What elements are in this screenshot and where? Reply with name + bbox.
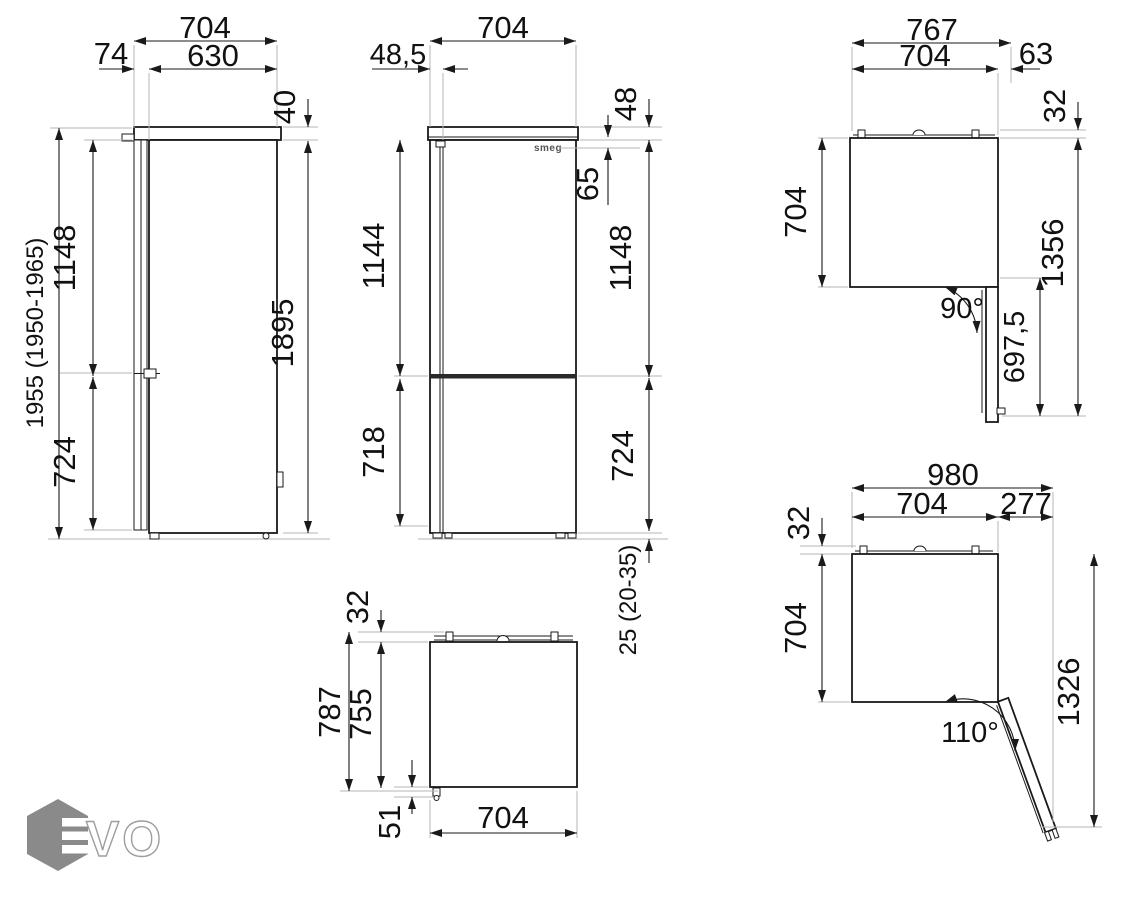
door-hinge-pin [997, 408, 1005, 414]
rear-spacer [551, 632, 558, 641]
dim-front-lower-left: 718 [356, 426, 391, 478]
drawing-svg: 704 630 74 40 1895 1955 (1950-1965) 1148… [0, 0, 1125, 900]
evo-watermark-text: VO [86, 811, 164, 867]
foot [556, 533, 565, 538]
dim-110-door-side: 277 [1000, 486, 1052, 521]
top110-drawing [852, 546, 1059, 842]
dim-side-upper-door: 1148 [47, 225, 82, 292]
cabinet-body [850, 138, 998, 287]
cabinet-body [149, 140, 277, 533]
dim-110-angle: 110° [941, 717, 999, 749]
foot [445, 533, 452, 538]
dim-front-upper-left: 1144 [356, 223, 391, 290]
rear-spacer [860, 546, 867, 554]
dim-side-depth-body: 630 [187, 38, 239, 73]
top-view-closed: 32 787 755 51 704 [312, 590, 577, 839]
top-view-door-110: 980 704 277 32 704 1326 110° [778, 457, 1102, 842]
dimension-drawing: 704 630 74 40 1895 1955 (1950-1965) 1148… [0, 0, 1125, 900]
dim-110-rear-gap: 32 [781, 506, 816, 540]
top-view-door-90: 767 704 63 32 704 697,5 1356 90° [778, 12, 1086, 422]
closed-drawing [430, 632, 577, 801]
dim-front-lower-right: 724 [605, 430, 640, 482]
dim-side-lower-door: 724 [47, 436, 82, 488]
dim-side-height-total: 1955 (1950-1965) [22, 238, 49, 429]
side-view: 704 630 74 40 1895 1955 (1950-1965) 1148… [22, 10, 330, 539]
rear-pipe [914, 546, 926, 551]
cabinet-body [430, 642, 577, 787]
dim-110-width: 704 [896, 486, 948, 521]
rear-spacer [277, 472, 283, 487]
dim-front-upper-right: 1148 [603, 225, 638, 292]
dim-90-depth: 704 [778, 186, 813, 238]
front-foot [150, 533, 159, 539]
dim-90-door-width: 697,5 [999, 311, 1031, 384]
dim-front-top-panel: 48 [608, 87, 643, 121]
dim-90-angle: 90° [940, 293, 984, 325]
top-hinge [436, 141, 445, 147]
evo-watermark: VO [27, 799, 164, 871]
dim-closed-depth: 755 [343, 688, 378, 740]
cabinet-top-panel [428, 127, 578, 140]
dim-closed-depth-total: 787 [312, 686, 347, 738]
cabinet-body [852, 554, 998, 702]
dim-closed-rear-gap: 32 [340, 590, 375, 624]
dim-front-width: 704 [477, 10, 529, 45]
dim-closed-width: 704 [477, 800, 529, 835]
front-hinge-pin [434, 796, 439, 801]
cabinet-top-panel [134, 127, 281, 140]
door-hinge-pin [1045, 831, 1052, 841]
front-view: smeg 704 48,5 48 [356, 10, 668, 655]
dim-110-reach: 1326 [1051, 658, 1086, 727]
dim-90-reach: 1356 [1035, 219, 1070, 288]
rear-spacer [972, 546, 979, 554]
dim-90-rear-gap: 32 [1037, 89, 1072, 123]
top90-drawing [850, 130, 1005, 422]
dim-front-feet: 25 (20-35) [615, 545, 642, 656]
dim-closed-front-gap: 51 [372, 805, 407, 839]
foot [433, 533, 442, 538]
dim-110-depth: 704 [778, 602, 813, 654]
rear-spacer [858, 130, 865, 138]
smeg-door-logo: smeg [534, 143, 562, 154]
rear-spacer [972, 130, 979, 138]
front-hinge-foot [433, 788, 440, 796]
dim-front-hinge-offset: 48,5 [370, 39, 426, 71]
rear-spacer [446, 632, 453, 641]
foot [568, 533, 576, 538]
dim-side-top-panel: 40 [267, 90, 302, 124]
middle-hinge [144, 369, 156, 378]
dim-front-logo-offset: 65 [570, 167, 605, 201]
dim-90-hinge-side: 63 [1019, 36, 1053, 71]
door-split-line [430, 374, 576, 379]
dim-side-body-height: 1895 [265, 299, 300, 368]
dim-90-width: 704 [899, 38, 951, 73]
cabinet-body [430, 140, 576, 533]
door-hinge-pin [1052, 829, 1059, 839]
rear-pipe [913, 130, 925, 135]
dim-side-door-thickness: 74 [94, 36, 128, 71]
door-open-90 [986, 287, 998, 422]
rear-roller [263, 533, 269, 539]
